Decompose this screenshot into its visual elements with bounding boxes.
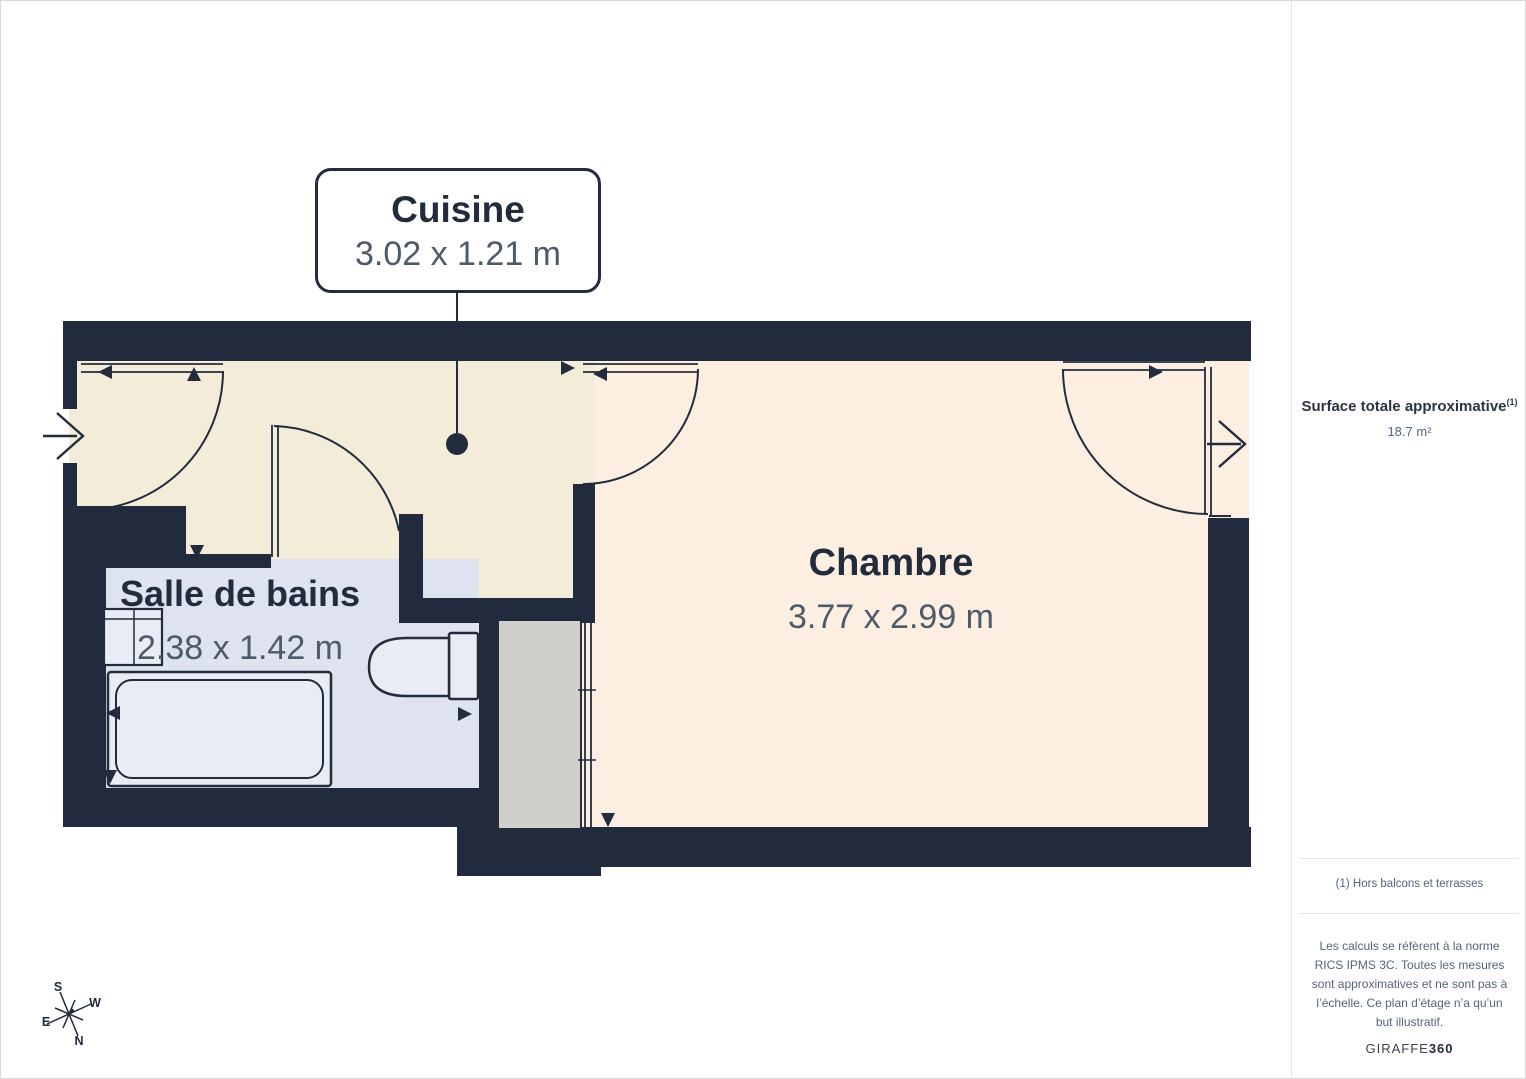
- info-sidebar: Surface totale approximative(1) 18.7 m² …: [1291, 1, 1526, 1078]
- compass-north: N: [74, 1034, 83, 1048]
- cuisine-title: Cuisine: [391, 190, 525, 230]
- room-label-salle-de-bains: Salle de bains 2.38 x 1.42 m: [101, 573, 379, 668]
- surface-block: Surface totale approximative(1) 18.7 m²: [1292, 397, 1526, 439]
- compass-star: [47, 992, 91, 1036]
- brand-name: GIRAFFE: [1365, 1041, 1428, 1056]
- salle-de-bains-title: Salle de bains: [101, 573, 379, 615]
- salle-de-bains-dimensions: 2.38 x 1.42 m: [101, 628, 379, 668]
- disclaimer-text: Les calculs se réfèrent à la norme RICS …: [1307, 937, 1513, 1032]
- cuisine-dimensions: 3.02 x 1.21 m: [355, 236, 561, 272]
- sidebar-divider: [1300, 913, 1519, 914]
- chambre-title: Chambre: [766, 541, 1016, 585]
- surface-title-superscript: (1): [1507, 397, 1518, 407]
- compass-east: E: [42, 1015, 50, 1029]
- bathtub: [108, 672, 331, 786]
- compass-south: S: [54, 980, 62, 994]
- compass-west: W: [89, 996, 101, 1010]
- toilet: [369, 633, 478, 699]
- closet: [498, 620, 596, 829]
- brand-logo: GIRAFFE360: [1292, 1041, 1526, 1056]
- brand-suffix: 360: [1429, 1041, 1454, 1056]
- floorplan-page: Cuisine 3.02 x 1.21 m Chambre 3.77 x 2.9…: [0, 0, 1526, 1079]
- surface-title-text: Surface totale approximative: [1301, 398, 1506, 415]
- surface-title: Surface totale approximative(1): [1292, 397, 1526, 415]
- room-label-chambre: Chambre 3.77 x 2.99 m: [766, 541, 1016, 637]
- surface-value: 18.7 m²: [1292, 424, 1526, 439]
- room-label-cuisine: Cuisine 3.02 x 1.21 m: [315, 168, 601, 293]
- chambre-dimensions: 3.77 x 2.99 m: [766, 597, 1016, 637]
- sidebar-divider: [1300, 858, 1519, 859]
- surface-footnote: (1) Hors balcons et terrasses: [1292, 878, 1526, 890]
